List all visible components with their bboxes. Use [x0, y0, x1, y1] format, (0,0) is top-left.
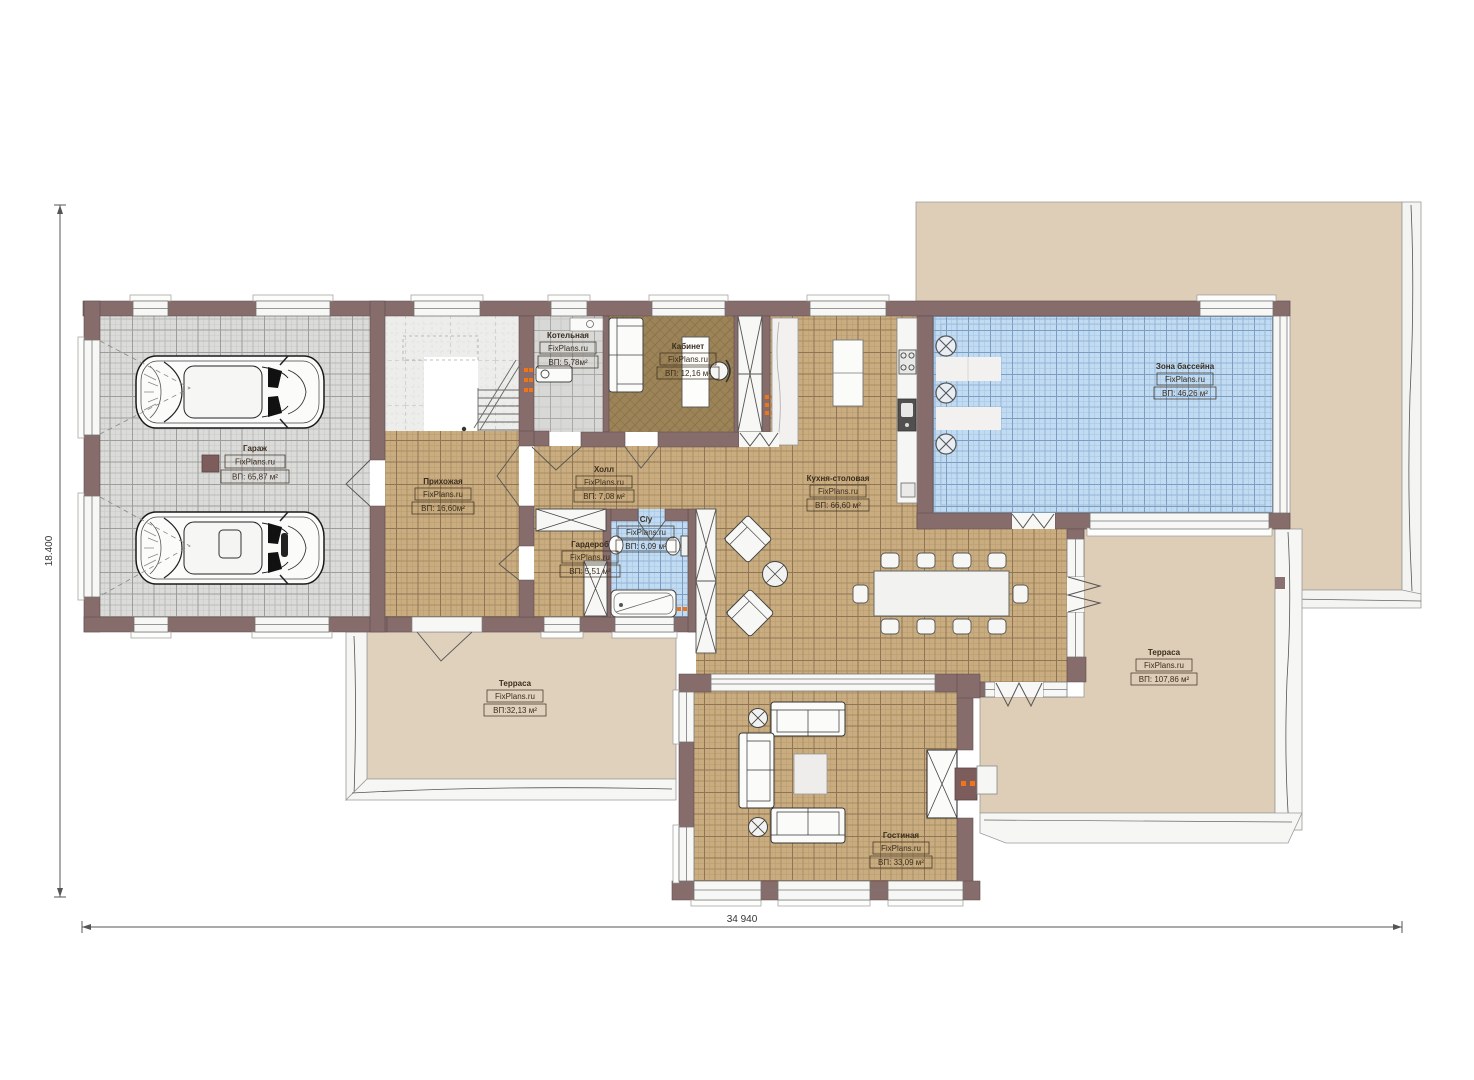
svg-text:ВП: 107,86 м²: ВП: 107,86 м²	[1139, 675, 1190, 684]
svg-text:34 940: 34 940	[727, 914, 758, 925]
svg-text:ВП: 66,60 м²: ВП: 66,60 м²	[815, 501, 861, 510]
svg-text:FixPlans.ru: FixPlans.ru	[1165, 375, 1205, 384]
svg-text:ВП: 16,60м²: ВП: 16,60м²	[421, 504, 465, 513]
svg-text:FixPlans.ru: FixPlans.ru	[548, 344, 588, 353]
svg-text:FixPlans.ru: FixPlans.ru	[881, 844, 921, 853]
svg-text:ВП: 46,26 м²: ВП: 46,26 м²	[1162, 389, 1208, 398]
svg-text:FixPlans.ru: FixPlans.ru	[423, 490, 463, 499]
svg-text:Котельная: Котельная	[547, 331, 589, 340]
svg-text:FixPlans.ru: FixPlans.ru	[818, 487, 858, 496]
svg-text:С/у: С/у	[640, 515, 653, 524]
svg-text:FixPlans.ru: FixPlans.ru	[1144, 661, 1184, 670]
svg-text:FixPlans.ru: FixPlans.ru	[668, 355, 708, 364]
svg-text:Зона бассейна: Зона бассейна	[1156, 362, 1215, 371]
svg-text:ВП: 5,78м²: ВП: 5,78м²	[548, 358, 588, 367]
svg-text:Гардероб: Гардероб	[571, 540, 609, 549]
svg-text:ВП: 65,87 м²: ВП: 65,87 м²	[232, 473, 278, 482]
svg-text:ВП: 12,16 м²: ВП: 12,16 м²	[665, 369, 711, 378]
svg-text:Терраса: Терраса	[1148, 648, 1181, 657]
svg-text:Гараж: Гараж	[243, 444, 267, 453]
svg-text:ВП: 5,51 м²: ВП: 5,51 м²	[569, 567, 611, 576]
svg-text:ВП:32,13 м²: ВП:32,13 м²	[493, 706, 537, 715]
svg-text:FixPlans.ru: FixPlans.ru	[626, 528, 666, 537]
svg-text:ВП: 6,09 м²: ВП: 6,09 м²	[625, 542, 667, 551]
svg-text:Кухня-столовая: Кухня-столовая	[807, 474, 870, 483]
svg-text:FixPlans.ru: FixPlans.ru	[570, 553, 610, 562]
svg-text:FixPlans.ru: FixPlans.ru	[584, 478, 624, 487]
svg-text:Кабинет: Кабинет	[672, 342, 704, 351]
svg-text:FixPlans.ru: FixPlans.ru	[235, 458, 275, 467]
svg-text:18.400: 18.400	[44, 535, 55, 566]
svg-text:Холл: Холл	[594, 465, 614, 474]
svg-text:Гостиная: Гостиная	[883, 831, 919, 840]
svg-text:FixPlans.ru: FixPlans.ru	[495, 692, 535, 701]
svg-text:Терраса: Терраса	[499, 679, 532, 688]
svg-text:ВП: 33,09 м²: ВП: 33,09 м²	[878, 858, 924, 867]
svg-text:Прихожая: Прихожая	[423, 477, 463, 486]
svg-text:ВП: 7,08 м²: ВП: 7,08 м²	[583, 492, 625, 501]
